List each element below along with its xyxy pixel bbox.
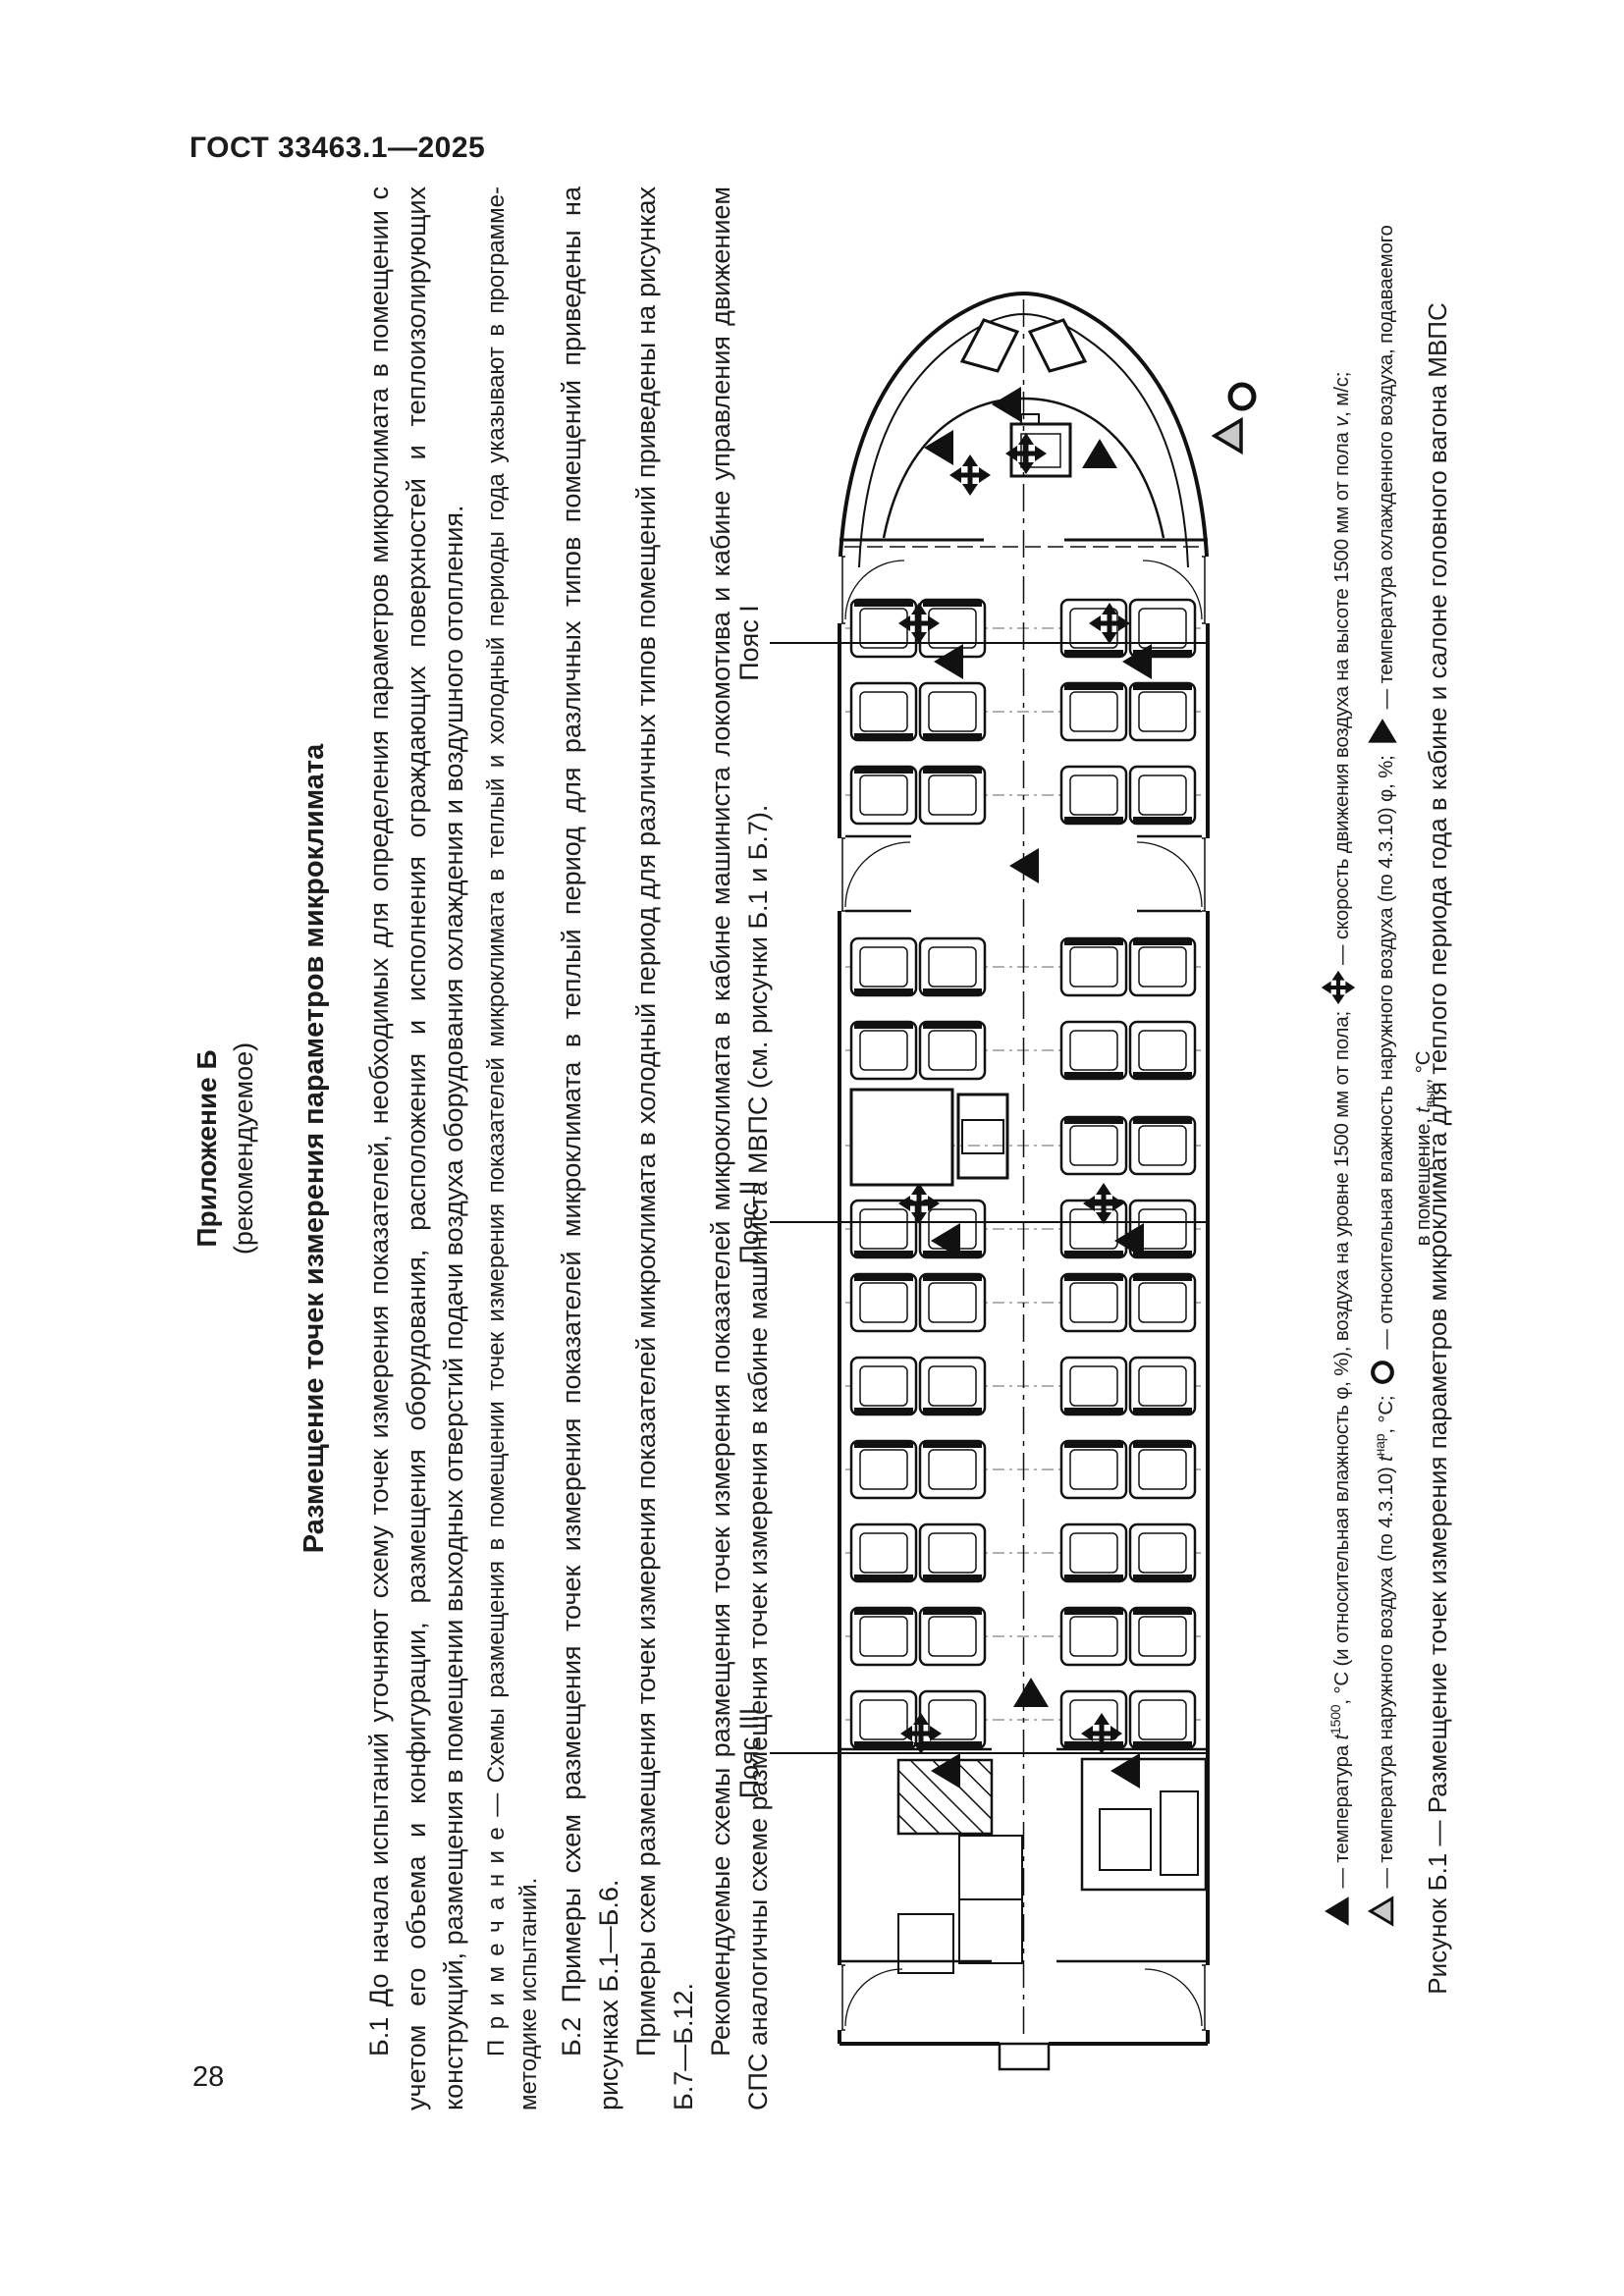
seat: [851, 1524, 916, 1581]
seat: [1130, 683, 1195, 740]
seat: [1130, 1117, 1195, 1174]
legend-text: t: [1375, 1456, 1397, 1462]
table: [958, 1095, 1007, 1178]
seat: [1061, 1524, 1126, 1581]
seat: [1130, 1608, 1195, 1665]
seat: [920, 767, 985, 824]
legend-text: , м/с;: [1330, 372, 1353, 417]
legend-text: , °C (и относительная влажность φ, %), в…: [1330, 1005, 1353, 1704]
legend-text: , °C;: [1375, 1390, 1397, 1434]
seat: [920, 683, 985, 740]
seat: [920, 1022, 985, 1079]
seat: [1061, 1608, 1126, 1665]
seat: [1130, 1691, 1195, 1748]
legend-text: — температура наружного воздуха (по 4.3.…: [1375, 1462, 1397, 1894]
seat: [920, 1691, 985, 1748]
figure-caption: Рисунок Б.1 — Размещение точек измерения…: [1423, 187, 1453, 2110]
legend-text: — скорость движения воздуха на высоте 15…: [1330, 427, 1353, 971]
paragraph-note: П р и м е ч а н и е — Схемы размещения в…: [480, 187, 545, 2110]
seat: [1061, 1117, 1126, 1174]
appendix-title: Размещение точек измерения параметров ми…: [298, 187, 331, 2110]
legend-line-1: — температура t1500, °C (и относительная…: [1317, 187, 1361, 2110]
seat: [920, 1358, 985, 1415]
seat: [851, 1358, 916, 1415]
seat: [1061, 1691, 1126, 1748]
seat: [1061, 600, 1126, 657]
seat: [851, 1274, 916, 1331]
legend-text: нар: [1372, 1434, 1387, 1457]
air-velocity-point-icon: [949, 454, 991, 496]
seat: [1130, 767, 1195, 824]
seat: [851, 938, 916, 995]
legend-symbol: [1322, 1894, 1355, 1929]
belt-label: Пояс III: [734, 1708, 764, 1799]
seat: [851, 1691, 916, 1748]
legend-text: t: [1330, 1735, 1353, 1740]
rotated-content: Приложение Б (рекомендуемое) Размещение …: [191, 187, 1463, 2110]
temperature-point-icon: [924, 430, 953, 465]
seat: [1130, 1022, 1195, 1079]
body-text: Б.1 До начала испытаний уточняют схему т…: [360, 187, 777, 2110]
temperature-point-icon: [992, 387, 1021, 422]
legend-line-2: — температура наружного воздуха (по 4.3.…: [1361, 187, 1405, 2110]
seat: [920, 938, 985, 995]
legend-text: — температура охлажденного воздуха, пода…: [1375, 225, 1397, 715]
seat: [920, 1524, 985, 1581]
temperature-point-icon: [1325, 1896, 1349, 1925]
seat: [1061, 1022, 1126, 1079]
appendix-status: (рекомендуемое): [229, 187, 259, 2110]
seat: [851, 767, 916, 824]
seat: [1130, 1274, 1195, 1331]
legend-symbol: [1322, 970, 1355, 1005]
luggage-cabinet: [851, 1090, 952, 1185]
supply-air-temperature-icon: [1368, 719, 1396, 743]
document-page: ГОСТ 33463.1—2025 28 Приложение Б (реком…: [0, 0, 1624, 2296]
seat: [1061, 683, 1126, 740]
seat: [1061, 1441, 1126, 1498]
seat: [920, 1608, 985, 1665]
paragraph-b2: Б.2 Примеры схем размещения точек измере…: [553, 187, 627, 2110]
seat: [920, 1274, 985, 1331]
appendix-label: Приложение Б: [191, 187, 223, 2110]
seat: [1061, 767, 1126, 824]
legend-text: — относительная влажность наружного возд…: [1375, 750, 1397, 1355]
seat: [1061, 1358, 1126, 1415]
seat: [1130, 938, 1195, 995]
seat: [851, 1201, 916, 1257]
legend-text: v: [1330, 417, 1353, 427]
outside-temperature-icon: [1370, 1898, 1391, 1924]
legend-text: — температура: [1330, 1739, 1353, 1894]
train-car-diagram: Пояс IПояс IIПояс III: [727, 187, 1311, 2110]
seat: [851, 1022, 916, 1079]
seat: [1130, 1358, 1195, 1415]
legend-symbol: [1366, 1355, 1399, 1390]
air-velocity-point-icon: [1322, 971, 1355, 1004]
seat: [1061, 1274, 1126, 1331]
belt-label: Пояс II: [734, 1180, 764, 1263]
seat: [920, 1441, 985, 1498]
outside-humidity-icon: [1230, 385, 1254, 408]
seat: [851, 683, 916, 740]
legend-symbol: [1366, 715, 1399, 750]
supply-air-temperature-icon: [1082, 439, 1117, 468]
cabinet: [898, 1914, 953, 1973]
seat: [1130, 1524, 1195, 1581]
legend-symbol: [1366, 1894, 1399, 1929]
seat: [1130, 1441, 1195, 1498]
outside-humidity-icon: [1373, 1362, 1392, 1382]
seat: [851, 1441, 916, 1498]
legend-text: 1500: [1327, 1705, 1343, 1735]
outside-temperature-icon: [1215, 420, 1241, 452]
belt-label: Пояс I: [734, 605, 764, 681]
seat: [1061, 938, 1126, 995]
supply-air-temperature-icon: [1013, 1678, 1049, 1707]
paragraph-b2a: Примеры схем размещения точек измерения …: [627, 187, 702, 2110]
seat: [851, 1608, 916, 1665]
standard-number: ГОСТ 33463.1—2025: [189, 132, 485, 165]
paragraph-b1: Б.1 До начала испытаний уточняют схему т…: [360, 187, 472, 2110]
seat: [1130, 600, 1195, 657]
